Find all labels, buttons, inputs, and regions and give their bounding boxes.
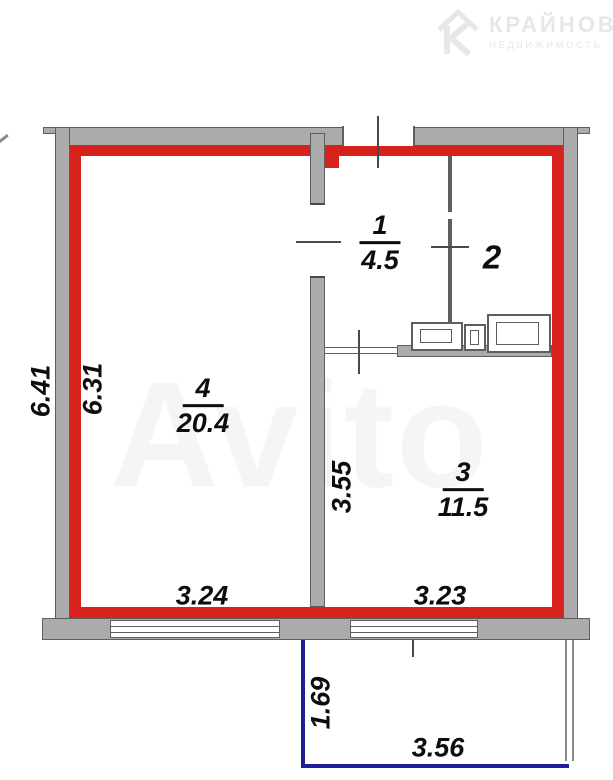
door-sill-top bbox=[310, 203, 325, 205]
cabinet bbox=[464, 324, 486, 351]
dimension-left-inner: 6.31 bbox=[80, 363, 107, 416]
room2-number: 2 bbox=[483, 241, 501, 276]
window-room4 bbox=[110, 620, 280, 638]
washing-machine-inner bbox=[420, 329, 452, 343]
red-outline-step bbox=[325, 155, 339, 168]
agency-subtitle: НЕДВИЖИМОСТЬ bbox=[489, 40, 613, 51]
window-room3-pane2 bbox=[351, 632, 477, 633]
dimension-left-outer: 6.41 bbox=[28, 365, 55, 418]
room-label-3: 3 11.5 bbox=[438, 458, 489, 522]
red-outline-top-room1-2 bbox=[325, 145, 552, 156]
window-room4-pane bbox=[111, 626, 279, 627]
balcony-outline-left bbox=[301, 640, 305, 768]
window-room3-pane bbox=[351, 626, 477, 627]
bathtub-inner bbox=[496, 322, 539, 345]
agency-logo-text: КРАЙНОВ НЕДВИЖИМОСТЬ bbox=[489, 13, 613, 50]
room-label-2: 2 bbox=[483, 241, 501, 276]
door-sill-bottom bbox=[310, 276, 325, 278]
dimension-balcony-width: 3.56 bbox=[412, 735, 465, 762]
room4-number: 4 bbox=[182, 374, 223, 407]
balcony-outline-bottom bbox=[301, 764, 569, 768]
room3-number: 3 bbox=[442, 458, 483, 491]
window-room4-pane2 bbox=[111, 632, 279, 633]
partition-room1-room3 bbox=[325, 347, 397, 354]
dimension-room3-width: 3.23 bbox=[414, 583, 467, 610]
room3-area: 11.5 bbox=[438, 494, 489, 522]
agency-name: КРАЙНОВ bbox=[489, 13, 613, 37]
window-room3-balcony bbox=[350, 620, 478, 638]
door-break-room2 bbox=[446, 212, 454, 219]
entrance-tick bbox=[377, 116, 379, 168]
door-tick-room4 bbox=[296, 241, 341, 243]
balcony-door-tick bbox=[412, 640, 414, 657]
red-outline-bottom bbox=[70, 607, 563, 618]
dimension-room4-width: 3.24 bbox=[176, 583, 229, 610]
avito-watermark: Avito bbox=[110, 349, 489, 522]
red-outline-right bbox=[552, 145, 563, 618]
bathtub bbox=[487, 314, 551, 353]
door-tick-room3 bbox=[358, 330, 360, 374]
house-icon bbox=[437, 8, 479, 56]
wall-right bbox=[563, 127, 578, 640]
wall-left bbox=[55, 127, 70, 640]
agency-logo: КРАЙНОВ НЕДВИЖИМОСТЬ bbox=[437, 8, 613, 56]
edge-artifact bbox=[0, 134, 9, 143]
room4-area: 20.4 bbox=[177, 410, 230, 438]
room-label-1: 1 4.5 bbox=[359, 211, 400, 275]
room1-area: 4.5 bbox=[359, 247, 400, 275]
dimension-balcony-depth: 1.69 bbox=[308, 677, 335, 730]
washing-machine bbox=[411, 322, 463, 351]
door-tick-room2 bbox=[431, 246, 469, 248]
room1-number: 1 bbox=[359, 211, 400, 244]
cabinet-inner bbox=[470, 330, 479, 345]
floorplan: КРАЙНОВ НЕДВИЖИМОСТЬ Avito bbox=[0, 0, 613, 780]
dimension-hall-height: 3.55 bbox=[329, 461, 356, 514]
red-outline-top-room4 bbox=[70, 145, 310, 156]
balcony-wall-right bbox=[565, 640, 574, 761]
room-label-4: 4 20.4 bbox=[177, 374, 230, 438]
